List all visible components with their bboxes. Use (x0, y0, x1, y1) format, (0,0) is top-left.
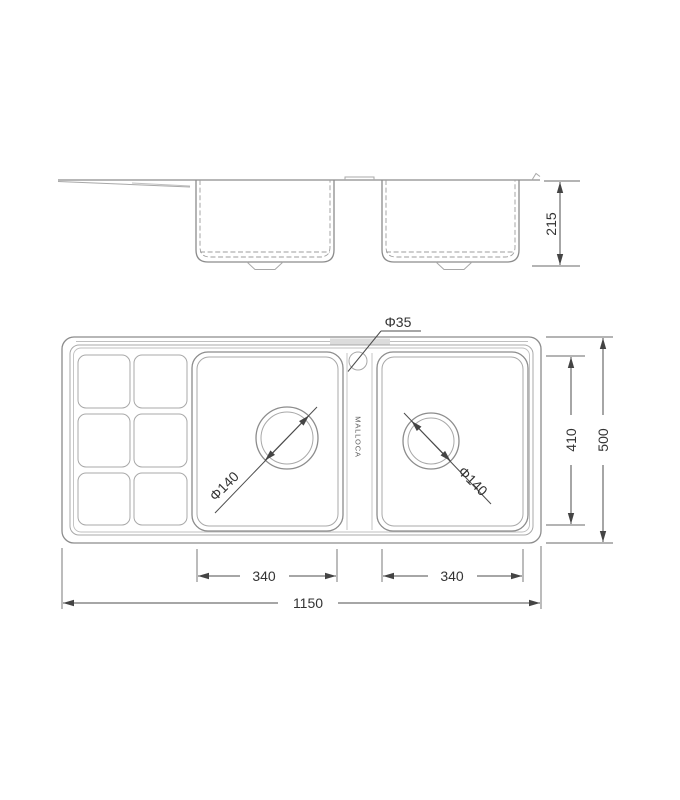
dim-label-left-drain: Φ140 (206, 468, 242, 504)
drawing-page: 215 (0, 0, 680, 800)
drainboard-grid (78, 355, 187, 525)
drainboard-square (134, 414, 187, 467)
drainboard-slope-line (58, 182, 190, 188)
left-bowl-section (196, 180, 334, 270)
right-drain-bump (436, 262, 472, 270)
bowl-divider: MALLOCA (347, 353, 372, 530)
right-rim-lip (532, 174, 540, 181)
plan-view: MALLOCA Φ35 Φ140 Φ140 (62, 314, 613, 611)
diameter-arrow (287, 416, 309, 439)
dimension-bowl-depth: 215 (532, 181, 580, 266)
left-bowl-hidden-outline (200, 180, 330, 257)
left-drain-bump (247, 262, 283, 270)
front-elevation-view: 215 (58, 174, 580, 270)
bottom-dimensions: 340 340 1150 (62, 546, 541, 611)
sink-technical-drawing: 215 (0, 0, 680, 800)
left-bowl-outline (196, 180, 334, 262)
dim-label-340-left: 340 (252, 568, 276, 584)
dimension-right-drain: Φ140 (404, 413, 491, 504)
dim-label-410: 410 (563, 428, 579, 452)
right-bowl-plan (377, 352, 528, 531)
dim-label-215: 215 (543, 212, 559, 236)
diameter-arrow (412, 421, 432, 441)
diameter-arrow (431, 441, 451, 461)
sink-rim-inner-line (70, 345, 533, 535)
right-bowl-outline (382, 180, 519, 262)
dim-label-1150: 1150 (293, 595, 323, 611)
drainboard-square (134, 355, 187, 408)
dimension-bowl-length: 410 (546, 356, 585, 525)
dim-label-right-drain: Φ140 (455, 463, 491, 499)
drainboard-square (78, 414, 130, 467)
dim-label-500: 500 (595, 428, 611, 452)
dim-label-faucet: Φ35 (385, 314, 412, 330)
drainboard-square (134, 473, 187, 525)
right-bowl-hidden-outline (386, 180, 515, 257)
left-bowl-plan (192, 352, 343, 531)
diameter-arrow (265, 438, 287, 461)
sink-rim-inner-line-2 (74, 348, 530, 532)
dim-label-340-right: 340 (440, 568, 464, 584)
drainboard-square (78, 473, 130, 525)
drainboard-square (78, 355, 130, 408)
rim-center-shading (330, 339, 390, 345)
right-bowl-outer (377, 352, 528, 531)
left-bowl-outer (192, 352, 343, 531)
right-bowl-section (382, 180, 519, 270)
brand-label: MALLOCA (354, 416, 363, 457)
